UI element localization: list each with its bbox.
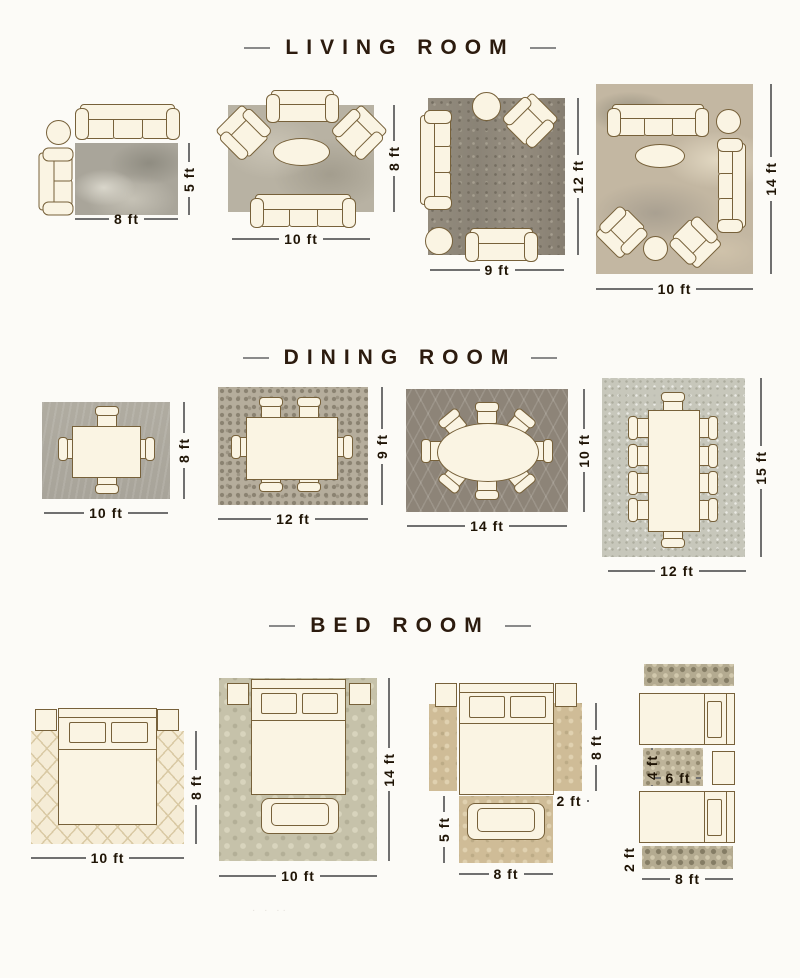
- nightstand-left: [435, 683, 457, 707]
- pillow: [261, 693, 296, 714]
- nightstand: [712, 751, 735, 785]
- runner-top: [644, 664, 734, 686]
- dimension-runner-height: 8 ft: [588, 703, 604, 791]
- dimension-height: 8 ft: [188, 731, 204, 844]
- dimension-between-rug-width: 6 ft: [655, 770, 701, 786]
- dimension-width: 10 ft: [219, 868, 377, 884]
- pillow: [510, 696, 545, 718]
- side-runner-left: [429, 704, 457, 791]
- runner-bottom: [642, 846, 733, 869]
- nightstand-left: [227, 683, 249, 705]
- pillow: [69, 722, 106, 744]
- pillow: [707, 701, 722, 738]
- twin-bed-bottom: [639, 791, 735, 843]
- dimension-foot-rug-width: 8 ft: [459, 866, 553, 882]
- dimension-height: 14 ft: [381, 678, 397, 861]
- nightstand-left: [35, 709, 57, 731]
- bed: [251, 679, 346, 795]
- nightstand-right: [555, 683, 577, 707]
- pillow: [302, 693, 337, 714]
- rug-size-guide-poster: LIVING ROOM 8 ft 5 ft: [0, 0, 800, 978]
- pillow: [707, 799, 722, 836]
- bed-room-section: BED ROOM 10 ft 8 ft 10: [0, 0, 800, 978]
- dimension-runner-height: 2 ft: [621, 842, 637, 872]
- pillow: [469, 696, 504, 718]
- dimension-runner-width: 2 ft: [549, 793, 589, 809]
- bed-room-header: BED ROOM: [0, 614, 800, 638]
- nightstand-right: [157, 709, 179, 731]
- foot-bench: [467, 803, 545, 840]
- bed-room-title: BED ROOM: [310, 614, 490, 638]
- pillow: [111, 722, 148, 744]
- bed: [58, 708, 157, 825]
- header-dash-left: [269, 625, 295, 627]
- dimension-foot-rug-height: 5 ft: [436, 796, 452, 863]
- bed: [459, 683, 554, 795]
- nightstand-right: [349, 683, 371, 705]
- twin-bed-top: [639, 693, 735, 745]
- header-dash-right: [505, 625, 531, 627]
- dimension-width: 10 ft: [31, 850, 184, 866]
- dimension-runner-width: 8 ft: [642, 871, 733, 887]
- foot-bench: [261, 798, 339, 834]
- side-runner-right: [553, 703, 582, 791]
- watermark: · · ··: [252, 905, 289, 916]
